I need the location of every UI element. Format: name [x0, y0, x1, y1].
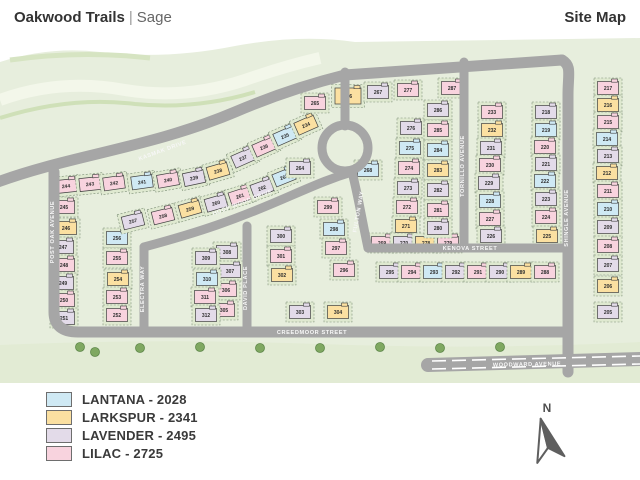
tree-icon [76, 343, 85, 352]
lot-number: 205 [604, 310, 613, 316]
lot-house-notch [442, 181, 448, 184]
lot-house-notch [354, 86, 360, 89]
lot-house-notch [411, 198, 417, 201]
lot-house-notch [210, 249, 216, 252]
lot-house-notch [494, 156, 500, 159]
lot-house-notch [415, 119, 421, 122]
street-label: SHINGLE AVENUE [564, 189, 570, 247]
lot-house-notch [121, 288, 127, 291]
lot-209[interactable]: 209 [594, 217, 622, 237]
legend-item-lilac: LILAC - 2725 [46, 444, 198, 462]
lot-285[interactable]: 285 [424, 120, 452, 140]
lot-number: 303 [296, 310, 305, 316]
lot-house-notch [338, 220, 344, 223]
lot-number: 208 [604, 244, 613, 250]
lot-number: 241 [138, 179, 147, 186]
lot-226[interactable]: 226 [477, 226, 505, 246]
lot-house-notch [93, 174, 99, 178]
lot-number: 276 [407, 126, 416, 132]
lot-299[interactable]: 299 [314, 197, 342, 217]
lot-number: 295 [386, 270, 395, 276]
lot-number: 233 [488, 110, 497, 116]
lot-house-notch [442, 201, 448, 204]
lot-house-notch [410, 217, 416, 220]
lot-house-notch [612, 303, 618, 306]
lot-number: 309 [202, 256, 211, 262]
lot-house-notch [413, 159, 419, 162]
lot-number: 280 [434, 226, 443, 232]
lot-number: 218 [542, 110, 551, 116]
lot-number: 245 [60, 205, 69, 211]
lot-house-notch [494, 192, 500, 195]
lot-house-notch [170, 169, 176, 173]
lot-number: 225 [543, 234, 552, 240]
lot-number: 213 [604, 154, 613, 160]
lot-house-notch [116, 173, 122, 177]
lot-house-notch [228, 301, 234, 304]
lot-number: 221 [542, 162, 551, 168]
lot-number: 214 [603, 137, 612, 143]
lot-house-notch [412, 81, 418, 84]
lot-number: 229 [485, 181, 494, 187]
lot-number: 231 [487, 146, 496, 152]
lot-233[interactable]: 233 [478, 102, 506, 122]
legend-item-lavender: LAVENDER - 2495 [46, 426, 198, 444]
lot-number: 228 [486, 199, 495, 205]
lot-number: 223 [542, 197, 551, 203]
lot-number: 273 [404, 186, 413, 192]
lot-number: 305 [220, 308, 229, 314]
lot-house-notch [493, 174, 499, 177]
lot-house-notch [286, 266, 292, 269]
lot-house-notch [442, 121, 448, 124]
lot-224[interactable]: 224 [532, 207, 560, 227]
lot-number: 296 [340, 268, 349, 274]
lot-number: 254 [114, 277, 123, 283]
lot-212[interactable]: 212 [593, 163, 621, 183]
legend-label: LILAC - 2725 [82, 446, 163, 461]
lot-number: 246 [62, 226, 71, 232]
lot-286[interactable]: 286 [424, 100, 452, 120]
lot-298[interactable]: 298 [320, 219, 348, 239]
lot-house-notch [495, 139, 501, 142]
lot-house-notch [612, 79, 618, 82]
lot-number: 301 [277, 254, 286, 260]
lot-number: 274 [405, 166, 414, 172]
lot-number: 293 [430, 270, 439, 276]
lot-number: 212 [603, 171, 612, 177]
street-label: CREEDMOOR STREET [277, 330, 347, 336]
tree-icon [316, 344, 325, 353]
lot-number: 222 [541, 179, 550, 185]
lot-number: 311 [201, 295, 209, 301]
lot-205[interactable]: 205 [594, 302, 622, 322]
lot-number: 287 [448, 86, 457, 92]
lot-302[interactable]: 302 [268, 265, 296, 285]
legend-label: LANTANA - 2028 [82, 392, 187, 407]
lot-252[interactable]: 252 [103, 305, 131, 325]
lot-house-notch [348, 261, 354, 264]
lot-house-notch [612, 237, 618, 240]
lot-228[interactable]: 228 [476, 191, 504, 211]
lot-274[interactable]: 274 [395, 158, 423, 178]
street-label: POST OAK AVENUE [50, 201, 56, 263]
lot-house-notch [549, 263, 555, 266]
tree-icon [196, 343, 205, 352]
lot-house-notch [550, 208, 556, 211]
lot-house-notch [68, 198, 74, 201]
lot-number: 300 [277, 234, 286, 240]
lot-number: 206 [604, 284, 613, 290]
lot-number: 232 [488, 128, 497, 134]
lot-number: 209 [604, 225, 613, 231]
lot-house-notch [210, 306, 216, 309]
lot-house-notch [612, 200, 618, 203]
lot-number: 275 [406, 146, 415, 152]
lot-number: 282 [434, 188, 443, 194]
lot-house-notch [550, 190, 556, 193]
street-label: WOODWARD AVENUE [493, 361, 561, 368]
lot-number: 299 [324, 205, 333, 211]
lot-house-notch [209, 288, 215, 291]
lot-house-notch [611, 130, 617, 133]
lot-288[interactable]: 288 [531, 262, 559, 282]
lot-house-notch [550, 121, 556, 124]
lot-number: 290 [496, 270, 505, 276]
tree-icon [376, 343, 385, 352]
street-label: KENOVA STREET [443, 246, 498, 252]
lot-304[interactable]: 304 [324, 302, 352, 322]
lot-number: 250 [60, 298, 69, 304]
lot-number: 253 [113, 295, 122, 301]
tree-icon [496, 343, 505, 352]
lot-210[interactable]: 210 [594, 199, 622, 219]
lot-house-notch [121, 249, 127, 252]
lot-house-notch [550, 103, 556, 106]
site-map-page: Oakwood Trails|Sage Site Map 24424324224… [0, 0, 640, 480]
lot-house-notch [525, 263, 531, 266]
lot-222[interactable]: 222 [531, 171, 559, 191]
lot-house-notch [612, 277, 618, 280]
lot-number: 244 [62, 183, 71, 190]
legend-item-larkspur: LARKSPUR - 2341 [46, 408, 198, 426]
lot-number: 283 [434, 168, 443, 174]
legend-item-lantana: LANTANA - 2028 [46, 390, 198, 408]
lot-house-notch [612, 147, 618, 150]
street-label: TORNILLO AVENUE [460, 135, 466, 197]
lot-house-notch [304, 159, 310, 162]
tree-icon [136, 344, 145, 353]
lot-number: 292 [452, 270, 461, 276]
lot-253[interactable]: 253 [103, 287, 131, 307]
north-label: N [524, 402, 570, 414]
lot-house-notch [372, 161, 378, 164]
lot-number: 217 [604, 86, 613, 92]
lot-number: 271 [402, 224, 411, 230]
lot-house-notch [68, 309, 74, 312]
legend-label: LARKSPUR - 2341 [82, 410, 198, 425]
lot-number: 289 [517, 270, 526, 276]
lot-house-notch [612, 182, 618, 185]
lot-house-notch [285, 227, 291, 230]
lot-number: 211 [604, 189, 612, 195]
lot-number: 291 [474, 270, 483, 276]
lot-house-notch [551, 227, 557, 230]
lot-house-notch [442, 219, 448, 222]
lot-number: 207 [604, 263, 613, 269]
larkspur-swatch-icon [46, 410, 72, 425]
lot-number: 298 [330, 227, 339, 233]
lot-house-notch [612, 256, 618, 259]
lot-house-notch [342, 303, 348, 306]
lot-number: 288 [541, 270, 550, 276]
lot-230[interactable]: 230 [476, 155, 504, 175]
lot-house-notch [549, 138, 555, 141]
lot-number: 277 [404, 88, 413, 94]
lot-house-notch [550, 155, 556, 158]
lot-house-notch [67, 238, 73, 241]
lot-house-notch [612, 113, 618, 116]
lot-296[interactable]: 296 [330, 260, 358, 280]
lot-264[interactable]: 264 [286, 158, 314, 178]
plan-legend: LANTANA - 2028 LARKSPUR - 2341 LAVENDER … [46, 390, 198, 462]
lot-283[interactable]: 283 [424, 160, 452, 180]
lot-house-notch [121, 306, 127, 309]
lot-number: 242 [110, 180, 119, 187]
lot-house-notch [67, 274, 73, 277]
lot-309[interactable]: 309 [192, 248, 220, 268]
lot-house-notch [549, 172, 555, 175]
lot-number: 224 [542, 215, 551, 221]
lot-207[interactable]: 207 [594, 255, 622, 275]
north-arrow: N [524, 402, 570, 470]
lot-206[interactable]: 206 [594, 276, 622, 296]
lot-house-notch [211, 270, 217, 273]
lot-number: 216 [604, 103, 613, 109]
lot-house-notch [452, 234, 458, 237]
lot-number: 243 [86, 181, 95, 188]
lot-number: 308 [223, 250, 232, 256]
lot-number: 304 [334, 310, 343, 316]
lot-number: 256 [113, 236, 122, 242]
lot-218[interactable]: 218 [532, 102, 560, 122]
lot-number: 268 [364, 168, 373, 174]
lot-number: 252 [113, 313, 122, 319]
lot-house-notch [382, 83, 388, 86]
lot-house-notch [332, 198, 338, 201]
lot-house-notch [442, 161, 448, 164]
lot-number: 267 [374, 90, 383, 96]
lot-211[interactable]: 211 [594, 181, 622, 201]
lilac-swatch-icon [46, 446, 72, 461]
lot-number: 248 [60, 263, 69, 269]
lot-house-notch [234, 262, 240, 265]
lot-280[interactable]: 280 [424, 218, 452, 238]
lot-house-notch [70, 219, 76, 222]
lot-312[interactable]: 312 [192, 305, 220, 325]
lot-house-notch [319, 94, 325, 97]
lot-310[interactable]: 310 [193, 269, 221, 289]
lot-223[interactable]: 223 [532, 189, 560, 209]
tree-icon [91, 348, 100, 357]
lot-289[interactable]: 289 [507, 262, 535, 282]
lot-301[interactable]: 301 [267, 246, 295, 266]
lot-house-notch [340, 239, 346, 242]
lot-254[interactable]: 254 [104, 269, 132, 289]
lot-number: 284 [434, 148, 443, 154]
lot-272[interactable]: 272 [393, 197, 421, 217]
lot-number: 310 [203, 277, 212, 283]
lot-house-notch [612, 96, 618, 99]
lot-house-notch [304, 303, 310, 306]
lot-number: 306 [222, 288, 231, 294]
lot-house-notch [69, 176, 75, 180]
lot-house-notch [230, 281, 236, 284]
lot-house-notch [496, 121, 502, 124]
lavender-swatch-icon [46, 428, 72, 443]
lot-house-notch [144, 172, 150, 176]
lot-number: 247 [59, 245, 68, 251]
lot-number: 215 [604, 120, 613, 126]
lot-number: 219 [542, 128, 551, 134]
lot-number: 230 [486, 163, 495, 169]
lot-242[interactable]: 242 [99, 171, 130, 195]
lot-house-notch [412, 179, 418, 182]
lot-273[interactable]: 273 [394, 178, 422, 198]
lantana-swatch-icon [46, 392, 72, 407]
lot-house-notch [442, 101, 448, 104]
legend-label: LAVENDER - 2495 [82, 428, 196, 443]
lot-house-notch [495, 227, 501, 230]
lot-225[interactable]: 225 [533, 226, 561, 246]
lot-house-notch [68, 291, 74, 294]
lot-house-notch [414, 139, 420, 142]
lot-282[interactable]: 282 [424, 180, 452, 200]
lot-number: 297 [332, 246, 341, 252]
lot-number: 210 [604, 207, 613, 213]
lot-number: 294 [408, 270, 417, 276]
lot-number: 227 [486, 217, 495, 223]
lot-284[interactable]: 284 [424, 140, 452, 160]
lot-number: 220 [541, 145, 550, 151]
lot-house-notch [231, 243, 237, 246]
lot-303[interactable]: 303 [286, 302, 314, 322]
lot-297[interactable]: 297 [322, 238, 350, 258]
lot-house-notch [496, 103, 502, 106]
lot-number: 286 [434, 108, 443, 114]
street-label: ELECTRA WAY [140, 266, 146, 313]
lot-number: 265 [311, 101, 320, 107]
lot-229[interactable]: 229 [475, 173, 503, 193]
lot-267[interactable]: 267 [364, 82, 392, 102]
lot-300[interactable]: 300 [267, 226, 295, 246]
lot-number: 255 [113, 256, 122, 262]
lot-276[interactable]: 276 [397, 118, 425, 138]
lot-number: 272 [403, 205, 412, 211]
lot-house-notch [68, 256, 74, 259]
lot-number: 312 [202, 313, 211, 319]
north-arrow-icon [525, 414, 569, 466]
lot-number: 226 [487, 234, 496, 240]
lot-house-notch [442, 141, 448, 144]
lot-number: 307 [226, 269, 235, 275]
lot-265[interactable]: 265 [301, 93, 329, 113]
lot-house-notch [285, 247, 291, 250]
lot-number: 285 [434, 128, 443, 134]
lot-277[interactable]: 277 [394, 80, 422, 100]
lot-number: 281 [434, 208, 443, 214]
street-label: DAVID PLACE [243, 266, 249, 310]
lot-house-notch [611, 164, 617, 167]
tree-icon [436, 344, 445, 353]
lot-275[interactable]: 275 [396, 138, 424, 158]
lot-281[interactable]: 281 [424, 200, 452, 220]
lot-311[interactable]: 311 [191, 287, 219, 307]
lot-number: 264 [296, 166, 305, 172]
lot-house-notch [612, 218, 618, 221]
lot-house-notch [494, 210, 500, 213]
lot-number: 249 [59, 281, 68, 287]
lot-208[interactable]: 208 [594, 236, 622, 256]
tree-icon [256, 344, 265, 353]
lot-house-notch [122, 270, 128, 273]
lot-255[interactable]: 255 [103, 248, 131, 268]
lot-number: 302 [278, 273, 287, 279]
lot-232[interactable]: 232 [478, 120, 506, 140]
